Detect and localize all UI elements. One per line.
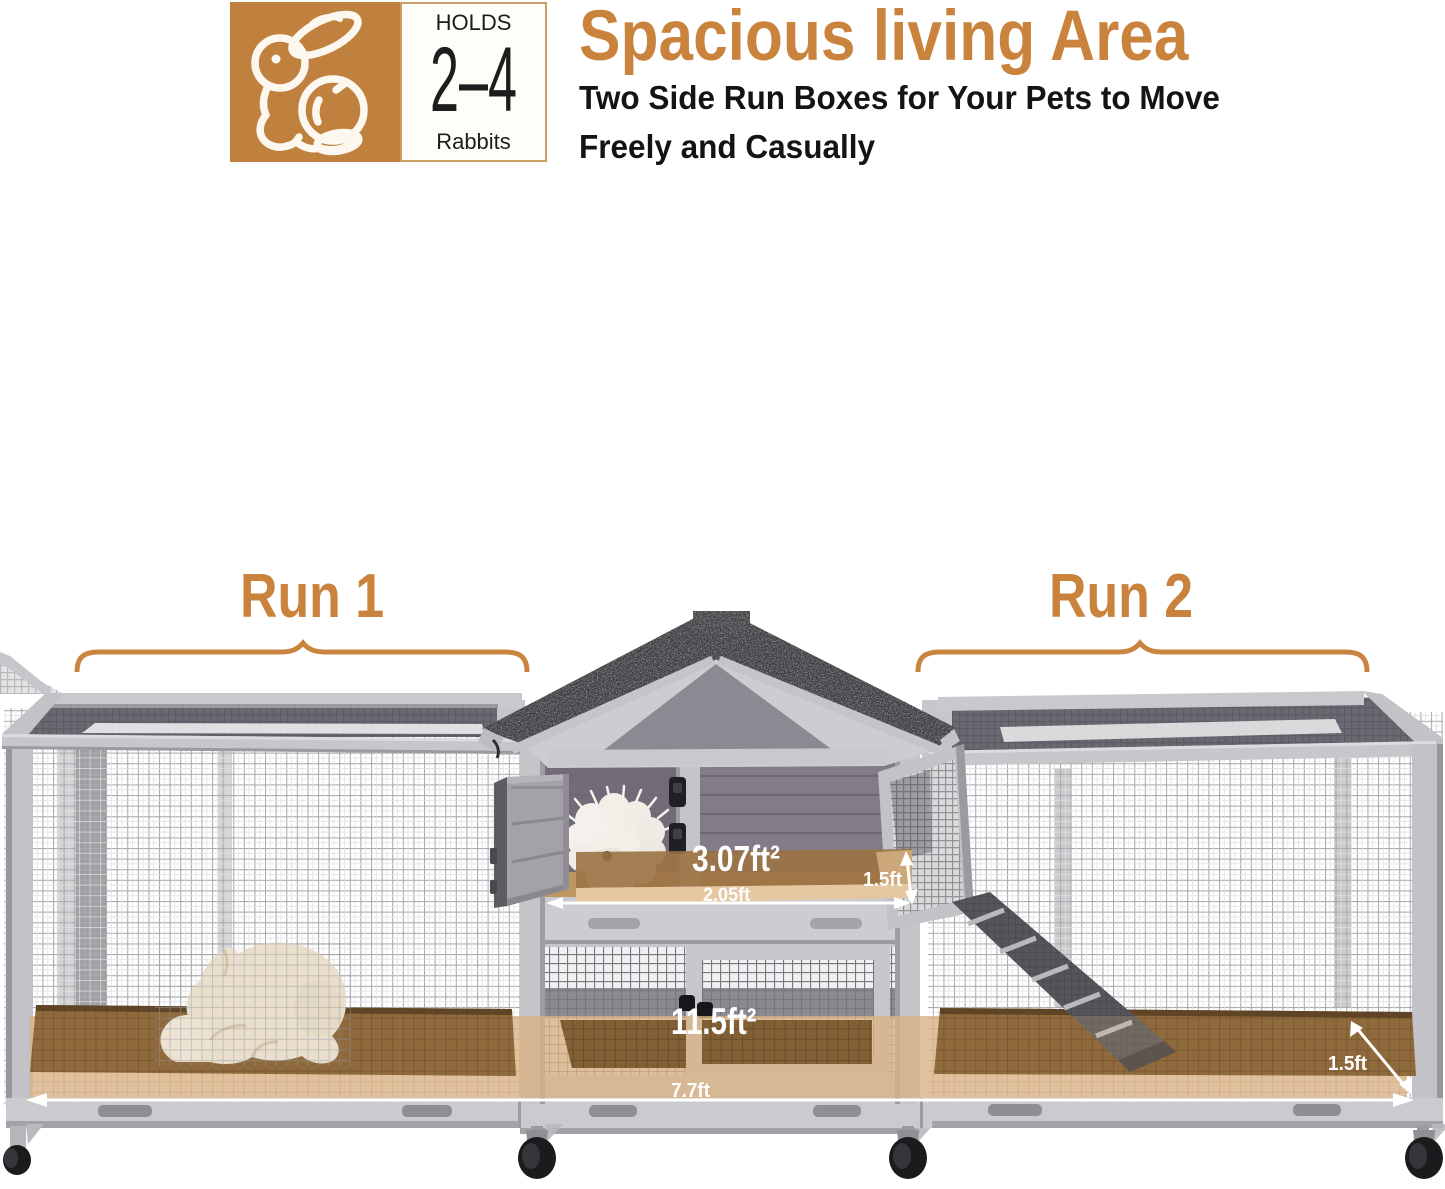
svg-text:3.07ft²: 3.07ft² [692,839,780,879]
svg-text:1.5ft: 1.5ft [1328,1053,1368,1076]
svg-text:1.5ft: 1.5ft [863,869,903,892]
svg-text:11.5ft²: 11.5ft² [671,1002,757,1043]
